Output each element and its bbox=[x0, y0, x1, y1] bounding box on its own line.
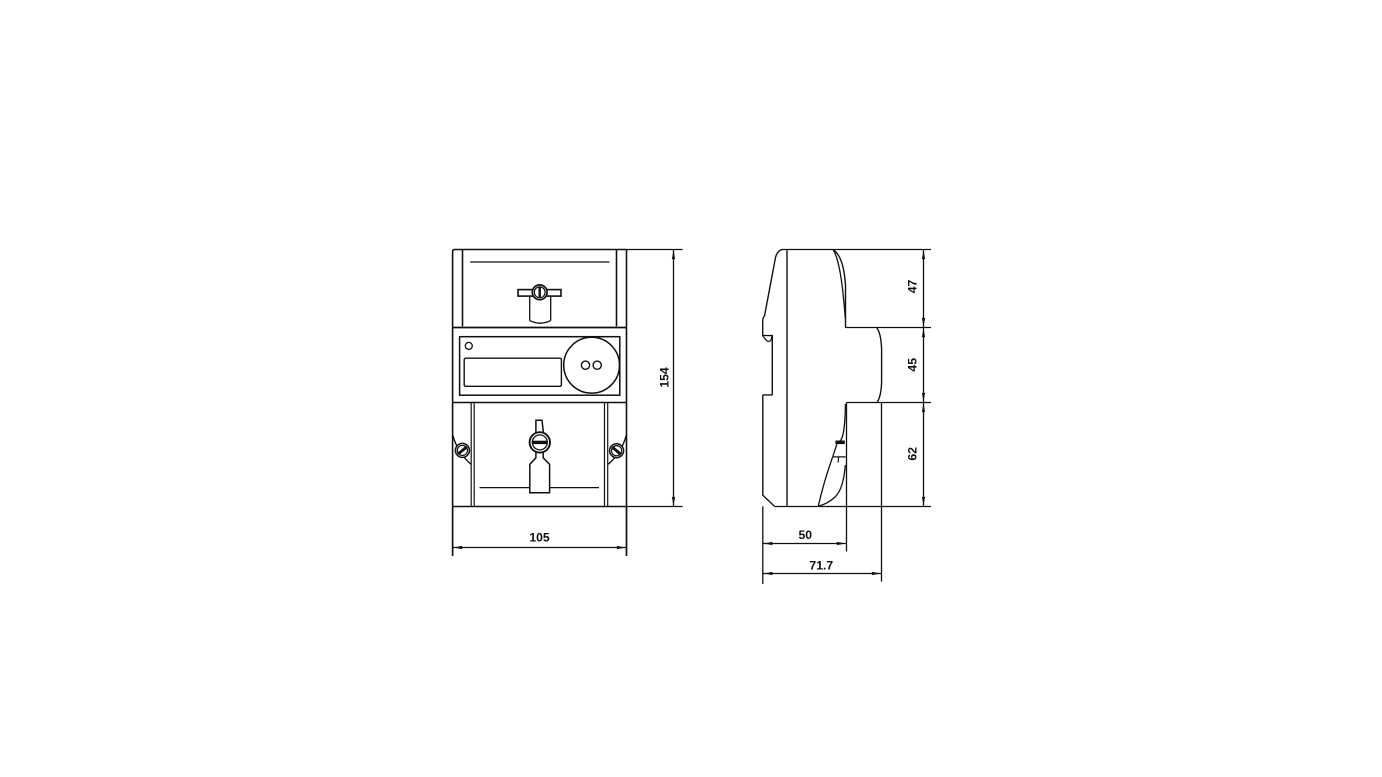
svg-text:45: 45 bbox=[906, 358, 920, 372]
svg-text:47: 47 bbox=[906, 280, 920, 294]
svg-text:50: 50 bbox=[799, 528, 813, 542]
svg-text:62: 62 bbox=[906, 447, 920, 461]
svg-text:71.7: 71.7 bbox=[809, 559, 833, 573]
svg-text:154: 154 bbox=[658, 367, 672, 388]
svg-text:105: 105 bbox=[529, 531, 550, 545]
